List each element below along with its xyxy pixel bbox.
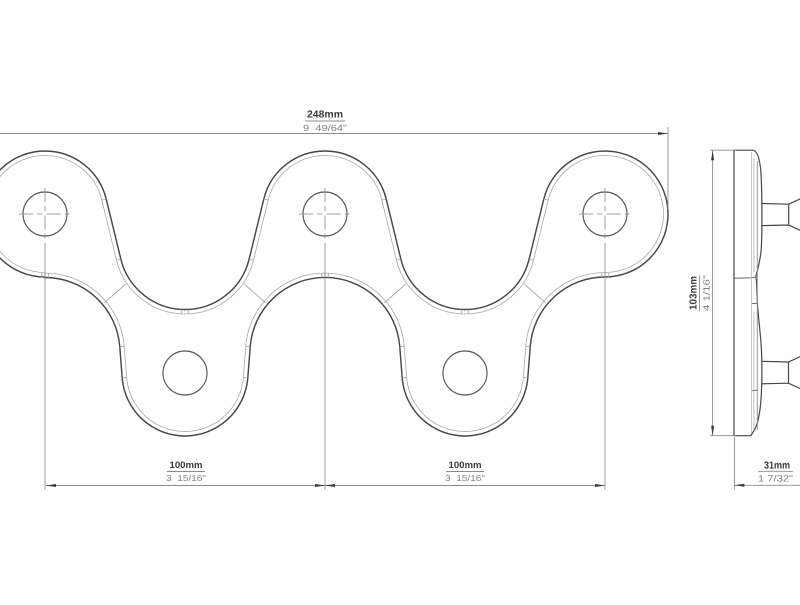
svg-text:100mm: 100mm — [170, 459, 203, 470]
svg-text:3 15/16": 3 15/16" — [445, 473, 485, 483]
svg-text:3 15/16": 3 15/16" — [166, 473, 206, 483]
svg-text:103mm: 103mm — [689, 276, 700, 310]
svg-text:100mm: 100mm — [449, 459, 482, 470]
svg-text:31mm: 31mm — [764, 461, 790, 472]
svg-text:248mm: 248mm — [307, 110, 343, 121]
svg-text:4 1/16": 4 1/16" — [702, 275, 712, 311]
svg-text:1 7/32": 1 7/32" — [758, 474, 793, 484]
svg-text:9 49/64": 9 49/64" — [303, 123, 347, 133]
